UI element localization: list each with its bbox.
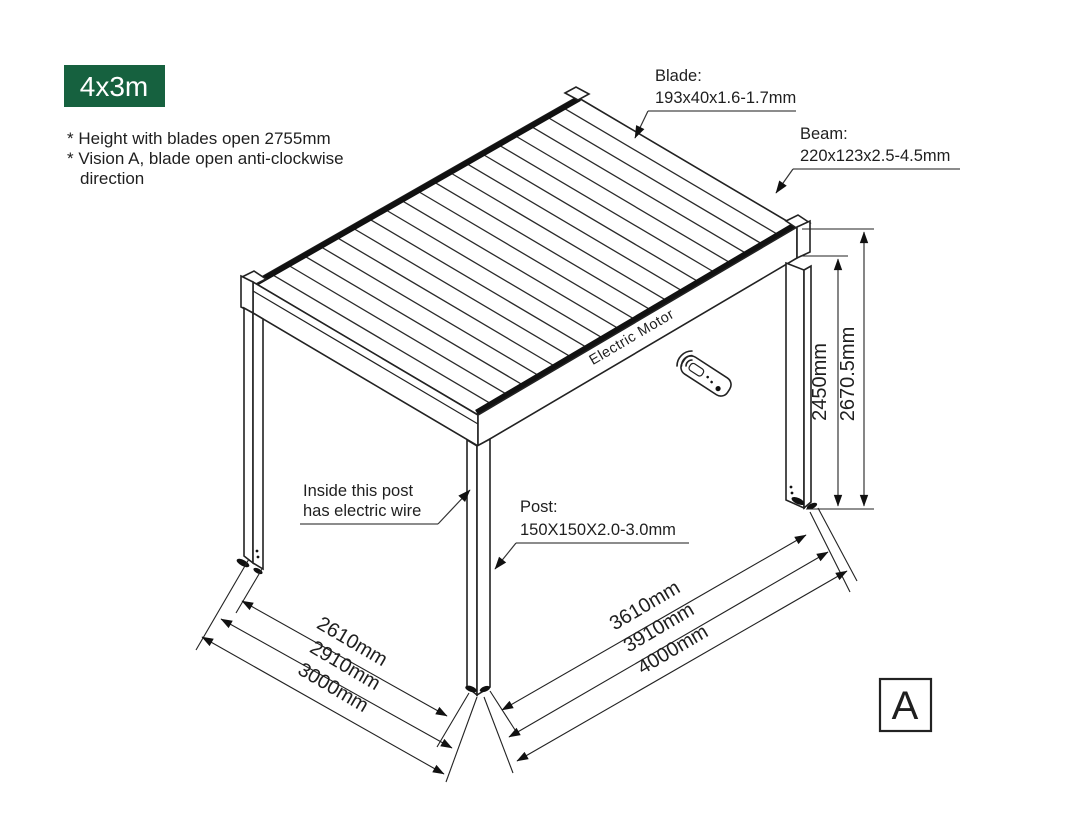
size-badge: 4x3m	[64, 65, 165, 107]
post-left-bolt	[256, 550, 259, 553]
callout-blade: Blade: 193x40x1.6-1.7mm	[635, 67, 796, 138]
note-line-3: direction	[80, 169, 144, 188]
beam-endcap-left	[241, 276, 253, 313]
ext-line-mid-post-left-1	[437, 693, 469, 747]
post-left-face-1	[244, 308, 253, 563]
roof-corner-cap-top	[565, 87, 589, 100]
blade-leader-arrow	[635, 111, 648, 138]
view-label-box: A	[880, 679, 931, 731]
post-middle-face-1	[467, 440, 477, 695]
pergola-diagram-svg: 4x3m * Height with blades open 2755mm * …	[0, 0, 1080, 831]
wire-label-line-1: Inside this post	[303, 482, 413, 500]
remote-control-icon	[677, 351, 734, 399]
callout-wire: Inside this post has electric wire	[300, 482, 470, 524]
post-left-bolt	[257, 556, 260, 559]
callout-beam: Beam: 220x123x2.5-4.5mm	[776, 125, 960, 193]
ext-line-mid-post-right-2	[490, 691, 517, 733]
ext-line-right-post-1	[810, 512, 850, 592]
ext-line-mid-post-left-2	[446, 697, 477, 782]
pergola-technical-drawing: 4x3m * Height with blades open 2755mm * …	[0, 0, 1080, 831]
remote-body	[678, 353, 734, 399]
post-label-title: Post:	[520, 498, 558, 516]
post-left-face-2	[253, 313, 263, 569]
dim-text-2670: 2670.5mm	[837, 327, 859, 422]
blade-label-title: Blade:	[655, 67, 702, 85]
wire-leader-arrow	[438, 490, 470, 524]
post-right-face-1	[786, 263, 804, 508]
beam-label-spec: 220x123x2.5-4.5mm	[800, 147, 950, 165]
note-line-1: * Height with blades open 2755mm	[67, 129, 331, 148]
beam-leader-arrow	[776, 169, 793, 193]
note-line-2: * Vision A, blade open anti-clockwise	[67, 149, 344, 168]
ext-line-mid-post-right-1	[484, 697, 513, 773]
blade-label-spec: 193x40x1.6-1.7mm	[655, 89, 796, 107]
dim-line-4000	[517, 571, 847, 761]
post-leader-arrow	[495, 543, 516, 569]
dim-text-2450: 2450mm	[809, 343, 831, 421]
size-badge-label: 4x3m	[80, 71, 148, 102]
post-label-spec: 150X150X2.0-3.0mm	[520, 521, 676, 539]
length-dimensions: 3610mm 3910mm 4000mm	[484, 508, 857, 773]
beam-endcap-right	[797, 221, 810, 258]
notes: * Height with blades open 2755mm * Visio…	[67, 129, 344, 188]
callout-post: Post: 150X150X2.0-3.0mm	[495, 498, 689, 569]
wire-label-line-2: has electric wire	[303, 502, 421, 520]
post-left	[235, 308, 263, 575]
ext-line-right-post-2	[818, 508, 857, 581]
beam-label-title: Beam:	[800, 125, 848, 143]
post-right-bolt	[790, 486, 793, 489]
view-label-letter: A	[892, 684, 919, 728]
post-right-bolt	[791, 492, 794, 495]
post-middle-face-2	[477, 439, 490, 695]
post-middle	[464, 439, 491, 695]
width-dimensions: 2610mm 2910mm 3000mm	[196, 559, 477, 782]
